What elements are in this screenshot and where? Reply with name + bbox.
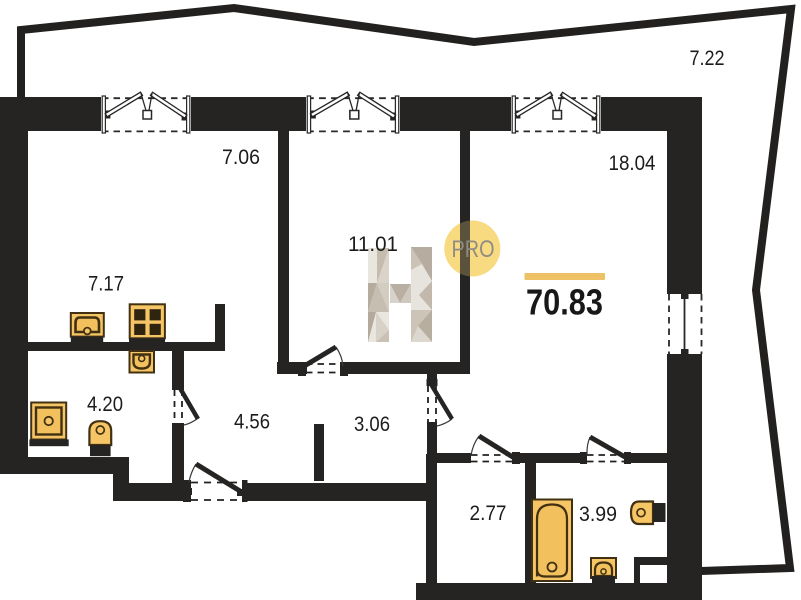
svg-text:18.04: 18.04: [609, 152, 656, 175]
svg-text:4.56: 4.56: [234, 411, 270, 434]
svg-text:PRO: PRO: [452, 236, 495, 263]
svg-text:3.06: 3.06: [354, 413, 390, 436]
svg-text:70.83: 70.83: [526, 282, 603, 323]
svg-text:7.06: 7.06: [222, 146, 260, 169]
svg-text:3.99: 3.99: [579, 503, 617, 526]
svg-text:11.01: 11.01: [348, 233, 398, 256]
svg-text:2.77: 2.77: [470, 502, 507, 525]
svg-text:7.22: 7.22: [690, 47, 725, 70]
svg-text:4.20: 4.20: [87, 393, 123, 416]
svg-text:7.17: 7.17: [88, 273, 124, 296]
